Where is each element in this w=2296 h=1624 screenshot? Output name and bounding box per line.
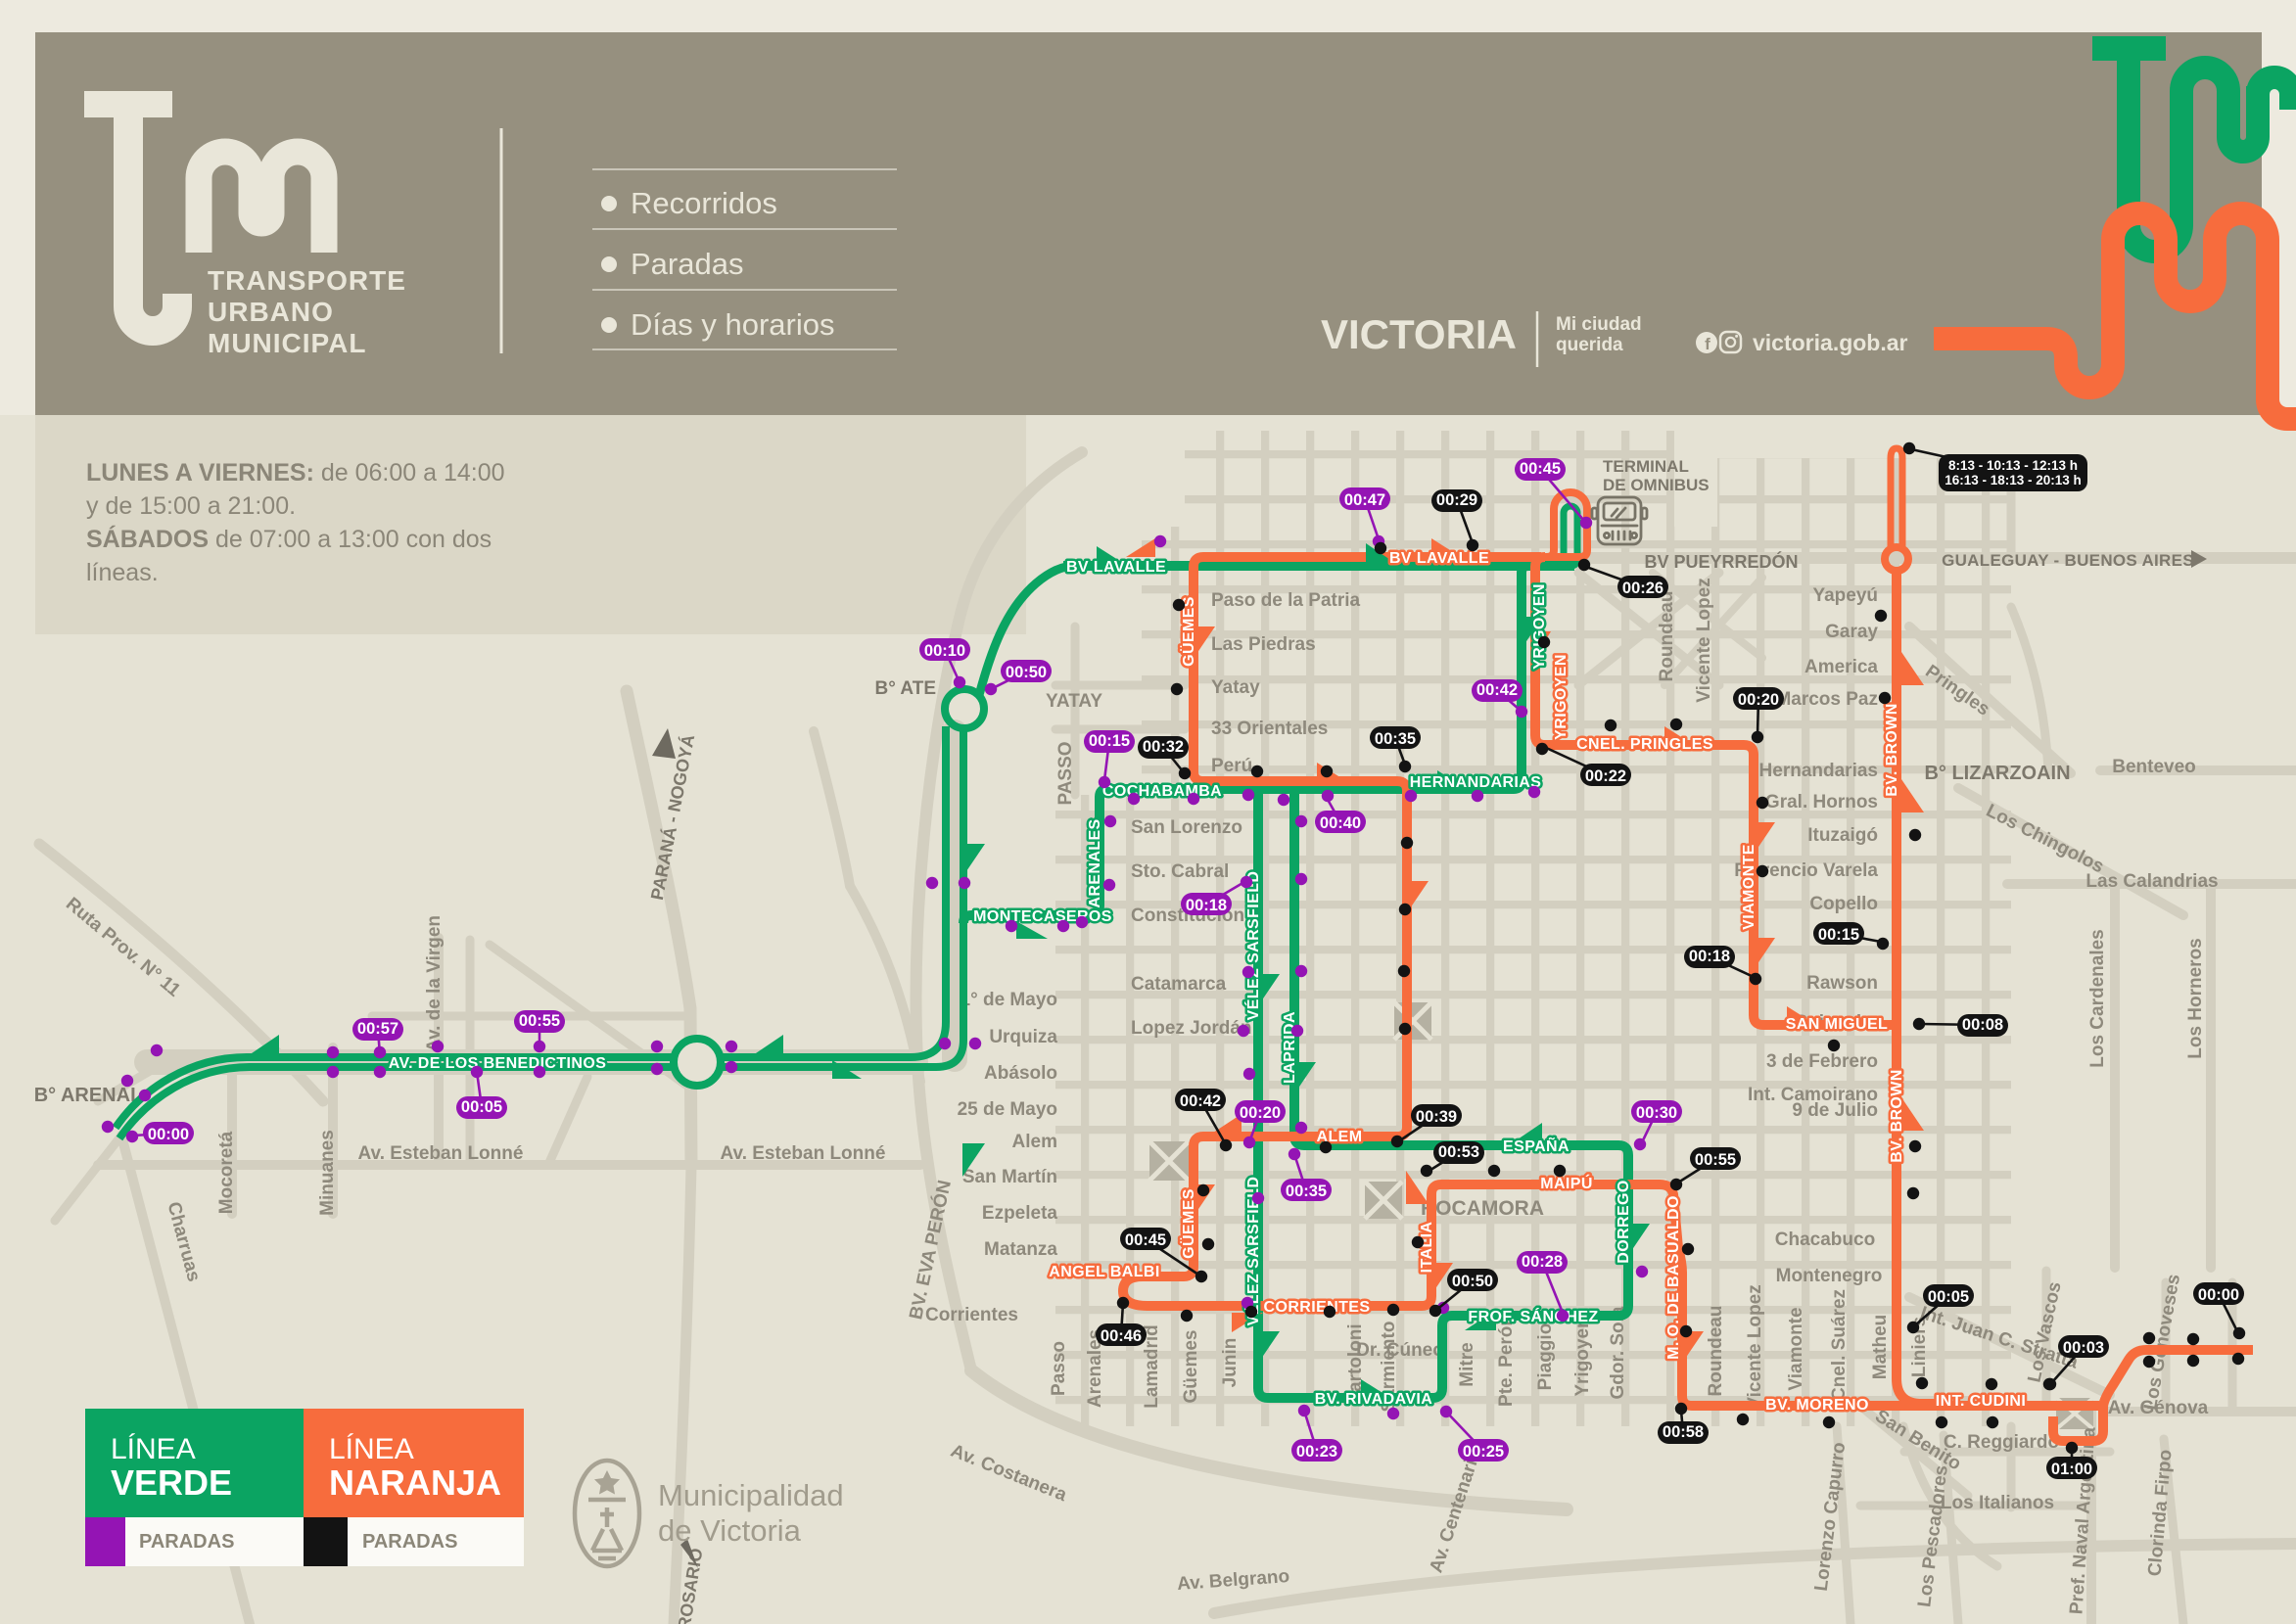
svg-text:YRIGOYEN: YRIGOYEN — [1553, 654, 1570, 740]
svg-text:San Lorenzo: San Lorenzo — [1131, 817, 1242, 838]
svg-text:00:20: 00:20 — [1240, 1104, 1281, 1122]
svg-text:00:55: 00:55 — [519, 1012, 560, 1030]
svg-text:Ituzaigó: Ituzaigó — [1807, 825, 1878, 846]
svg-text:Sto. Cabral: Sto. Cabral — [1131, 861, 1229, 882]
svg-text:PARADAS: PARADAS — [362, 1531, 457, 1553]
svg-text:00:42: 00:42 — [1476, 681, 1518, 699]
svg-text:YRIGOYEN: YRIGOYEN — [1531, 583, 1548, 670]
svg-text:LUNES A VIERNES: de 06:00 a 14: LUNES A VIERNES: de 06:00 a 14:00 — [86, 459, 505, 487]
svg-text:Ezpeleta: Ezpeleta — [982, 1203, 1058, 1224]
svg-text:FROF. SÁNCHEZ: FROF. SÁNCHEZ — [1468, 1307, 1598, 1325]
svg-text:BV LAVALLE: BV LAVALLE — [1389, 550, 1489, 567]
svg-text:Corrientes: Corrientes — [925, 1305, 1018, 1325]
svg-text:B° ARENAL: B° ARENAL — [34, 1085, 143, 1106]
svg-text:B° ATE: B° ATE — [875, 678, 936, 699]
svg-text:Marcos Paz: Marcos Paz — [1775, 689, 1878, 710]
svg-text:Copello: Copello — [1809, 894, 1878, 914]
svg-text:Piaggio: Piaggio — [1535, 1323, 1556, 1391]
svg-text:Las Calandrias: Las Calandrias — [2085, 871, 2218, 892]
svg-text:Hernandarias: Hernandarias — [1759, 761, 1878, 781]
svg-text:00:29: 00:29 — [1436, 491, 1477, 509]
svg-text:COCHABAMBA: COCHABAMBA — [1102, 783, 1222, 800]
svg-text:Mitre: Mitre — [1457, 1342, 1477, 1386]
svg-text:Chacabuco: Chacabuco — [1775, 1230, 1875, 1250]
svg-text:Vicente Lopez: Vicente Lopez — [1694, 578, 1714, 702]
svg-text:M. O. DE BASUALDO: M. O. DE BASUALDO — [1665, 1195, 1682, 1360]
svg-text:00:20: 00:20 — [1738, 691, 1779, 709]
svg-text:00:00: 00:00 — [2198, 1286, 2239, 1304]
svg-text:Vicente Lopez: Vicente Lopez — [1745, 1284, 1765, 1409]
svg-text:00:30: 00:30 — [1636, 1104, 1677, 1122]
svg-text:ANGEL BALBI: ANGEL BALBI — [1049, 1264, 1159, 1280]
svg-text:Rawson: Rawson — [1806, 973, 1878, 994]
svg-text:URBANO: URBANO — [208, 297, 334, 327]
svg-text:Paso de la Patria: Paso de la Patria — [1211, 590, 1361, 611]
svg-text:Alem: Alem — [1012, 1132, 1057, 1152]
svg-text:00:50: 00:50 — [1006, 664, 1047, 681]
svg-text:BV LAVALLE: BV LAVALLE — [1066, 559, 1166, 576]
svg-text:Av. Esteban Lonné: Av. Esteban Lonné — [721, 1143, 886, 1164]
svg-text:MUNICIPAL: MUNICIPAL — [208, 328, 366, 358]
svg-text:SAN MIGUEL: SAN MIGUEL — [1786, 1016, 1888, 1033]
svg-text:Urquiza: Urquiza — [989, 1027, 1057, 1047]
svg-text:Viamonte: Viamonte — [1786, 1307, 1806, 1390]
svg-text:MONTECASEROS: MONTECASEROS — [973, 908, 1112, 925]
svg-text:Perú: Perú — [1211, 756, 1252, 776]
svg-text:DORREGO: DORREGO — [1616, 1180, 1632, 1263]
svg-text:querida: querida — [1556, 335, 1623, 355]
svg-text:Lopez Jordán: Lopez Jordán — [1131, 1018, 1252, 1039]
svg-text:00:10: 00:10 — [924, 642, 965, 660]
svg-text:LÍNEA: LÍNEA — [111, 1433, 196, 1465]
svg-text:33 Orientales: 33 Orientales — [1211, 719, 1328, 739]
svg-text:y de 15:00 a 21:00.: y de 15:00 a 21:00. — [86, 492, 296, 520]
svg-text:Municipalidad: Municipalidad — [658, 1478, 844, 1512]
svg-text:Av. de la Virgen: Av. de la Virgen — [424, 915, 445, 1052]
svg-text:SÁBADOS de 07:00 a 13:00 con d: SÁBADOS de 07:00 a 13:00 con dos — [86, 525, 492, 553]
svg-text:victoria.gob.ar: victoria.gob.ar — [1753, 330, 1908, 355]
svg-text:8:13 - 10:13 - 12:13 h: 8:13 - 10:13 - 12:13 h — [1948, 458, 2078, 473]
svg-text:00:00: 00:00 — [148, 1126, 189, 1143]
svg-text:DE OMNIBUS: DE OMNIBUS — [1603, 476, 1710, 494]
svg-text:NARANJA: NARANJA — [329, 1462, 501, 1503]
svg-text:CORRIENTES: CORRIENTES — [1264, 1299, 1371, 1316]
svg-text:00:53: 00:53 — [1438, 1143, 1479, 1161]
svg-text:Los Cardenales: Los Cardenales — [2087, 929, 2108, 1068]
svg-text:MAIPÚ: MAIPÚ — [1540, 1174, 1593, 1192]
svg-text:00:05: 00:05 — [461, 1098, 502, 1116]
svg-text:YATAY: YATAY — [1046, 691, 1102, 712]
svg-text:00:45: 00:45 — [1520, 460, 1561, 478]
svg-text:LÍNEA: LÍNEA — [329, 1433, 414, 1465]
svg-text:00:18: 00:18 — [1689, 948, 1730, 965]
svg-text:CNEL. PRINGLES: CNEL. PRINGLES — [1576, 736, 1713, 753]
svg-text:San Martín: San Martín — [962, 1167, 1057, 1187]
svg-text:00:15: 00:15 — [1089, 732, 1130, 750]
svg-text:BV. BROWN: BV. BROWN — [1884, 703, 1900, 796]
svg-text:B° LIZARZOAIN: B° LIZARZOAIN — [1924, 763, 2070, 784]
svg-text:00:32: 00:32 — [1143, 738, 1184, 756]
svg-text:líneas.: líneas. — [86, 559, 159, 586]
svg-text:01:00: 01:00 — [2051, 1461, 2092, 1478]
svg-text:GÜEMES: GÜEMES — [1179, 1188, 1197, 1259]
svg-text:Dr. Cúneo: Dr. Cúneo — [1356, 1340, 1444, 1361]
svg-text:BV. MORENO: BV. MORENO — [1765, 1397, 1869, 1414]
svg-text:00:28: 00:28 — [1522, 1253, 1563, 1271]
svg-text:VÉLEZ SARSFIELD: VÉLEZ SARSFIELD — [1243, 871, 1262, 1021]
svg-text:00:26: 00:26 — [1622, 580, 1663, 597]
svg-text:Matanza: Matanza — [984, 1239, 1057, 1260]
svg-text:Paradas: Paradas — [631, 247, 743, 281]
svg-text:VIAMONTE: VIAMONTE — [1741, 844, 1757, 930]
svg-text:Mi ciudad: Mi ciudad — [1556, 314, 1642, 335]
svg-text:Días y horarios: Días y horarios — [631, 307, 834, 342]
svg-text:Recorridos: Recorridos — [631, 186, 777, 220]
svg-text:BV. RIVADAVIA: BV. RIVADAVIA — [1315, 1391, 1433, 1408]
svg-text:00:05: 00:05 — [1928, 1288, 1969, 1306]
svg-text:Roundeau: Roundeau — [1706, 1306, 1726, 1397]
svg-text:9 de Julio: 9 de Julio — [1792, 1100, 1878, 1121]
svg-text:00:42: 00:42 — [1180, 1092, 1221, 1110]
svg-text:C. Reggiardo: C. Reggiardo — [1944, 1432, 2059, 1453]
svg-text:Passo: Passo — [1049, 1341, 1069, 1396]
svg-text:00:25: 00:25 — [1463, 1443, 1504, 1461]
svg-text:00:35: 00:35 — [1286, 1183, 1327, 1200]
svg-text:00:47: 00:47 — [1344, 491, 1385, 509]
svg-text:3 de Febrero: 3 de Febrero — [1766, 1051, 1878, 1072]
svg-text:LAPRIDA: LAPRIDA — [1282, 1011, 1298, 1084]
svg-text:Mocoretá: Mocoretá — [216, 1131, 237, 1214]
svg-text:Minuanes: Minuanes — [317, 1130, 338, 1216]
svg-text:Montenegro: Montenegro — [1776, 1266, 1883, 1286]
svg-text:ESPAÑA: ESPAÑA — [1503, 1136, 1570, 1155]
svg-text:VERDE: VERDE — [111, 1462, 232, 1503]
svg-text:00:58: 00:58 — [1663, 1423, 1704, 1441]
svg-text:Yapeyú: Yapeyú — [1812, 585, 1878, 606]
svg-text:Los Horneros: Los Horneros — [2185, 938, 2206, 1059]
svg-text:00:46: 00:46 — [1101, 1327, 1142, 1345]
svg-text:America: America — [1804, 657, 1878, 677]
svg-text:Güemes: Güemes — [1181, 1330, 1201, 1404]
svg-text:00:45: 00:45 — [1125, 1231, 1166, 1249]
svg-text:INT. CUDINI: INT. CUDINI — [1936, 1393, 2026, 1410]
svg-text:Yrigoyen: Yrigoyen — [1572, 1317, 1593, 1396]
svg-text:Benteveo: Benteveo — [2112, 757, 2196, 777]
svg-text:Av. Esteban Lonné: Av. Esteban Lonné — [358, 1143, 524, 1164]
svg-text:Gral. Hornos: Gral. Hornos — [1765, 792, 1878, 812]
svg-text:de Victoria: de Victoria — [658, 1513, 802, 1548]
svg-text:00:40: 00:40 — [1320, 814, 1361, 832]
svg-text:AV. DE LOS BENEDICTINOS: AV. DE LOS BENEDICTINOS — [389, 1055, 607, 1072]
svg-text:00:39: 00:39 — [1416, 1108, 1457, 1126]
svg-text:Cnel. Suárez: Cnel. Suárez — [1829, 1289, 1850, 1401]
svg-text:GUALEGUAY - BUENOS AIRES: GUALEGUAY - BUENOS AIRES — [1942, 551, 2194, 570]
svg-text:00:15: 00:15 — [1818, 926, 1859, 944]
svg-text:Los Italianos: Los Italianos — [1941, 1493, 2054, 1513]
svg-text:00:57: 00:57 — [357, 1020, 398, 1038]
svg-text:00:22: 00:22 — [1585, 767, 1626, 785]
svg-text:16:13 - 18:13 - 20:13 h: 16:13 - 18:13 - 20:13 h — [1945, 473, 2082, 487]
svg-text:Garay: Garay — [1825, 622, 1878, 642]
svg-text:00:18: 00:18 — [1186, 897, 1227, 914]
svg-text:PASSO: PASSO — [1055, 741, 1076, 805]
svg-text:00:50: 00:50 — [1452, 1273, 1493, 1290]
svg-text:Catamarca: Catamarca — [1131, 974, 1227, 995]
svg-text:TRANSPORTE: TRANSPORTE — [208, 265, 406, 296]
svg-text:00:35: 00:35 — [1375, 730, 1416, 748]
svg-text:Yatay: Yatay — [1211, 677, 1260, 698]
svg-text:Roundeau: Roundeau — [1657, 591, 1677, 682]
svg-text:BV. BROWN: BV. BROWN — [1889, 1069, 1905, 1162]
svg-text:PARADAS: PARADAS — [139, 1531, 234, 1553]
svg-text:Las Piedras: Las Piedras — [1211, 634, 1316, 655]
svg-text:BV PUEYRREDÓN: BV PUEYRREDÓN — [1644, 551, 1798, 572]
svg-text:VICTORIA: VICTORIA — [1321, 311, 1517, 357]
svg-text:ROCAMORA: ROCAMORA — [1421, 1197, 1544, 1220]
svg-text:TERMINAL: TERMINAL — [1603, 457, 1689, 476]
svg-text:00:08: 00:08 — [1962, 1016, 2003, 1034]
svg-text:00:23: 00:23 — [1296, 1443, 1337, 1461]
svg-text:Abásolo: Abásolo — [984, 1063, 1057, 1084]
svg-text:00:55: 00:55 — [1695, 1151, 1736, 1169]
svg-text:f: f — [1705, 335, 1710, 353]
svg-text:00:03: 00:03 — [2063, 1339, 2104, 1357]
svg-text:ARENALES: ARENALES — [1087, 818, 1103, 907]
svg-text:Matheu: Matheu — [1870, 1315, 1891, 1380]
svg-text:25 de Mayo: 25 de Mayo — [958, 1099, 1057, 1120]
svg-text:HERNANDARIAS: HERNANDARIAS — [1410, 774, 1542, 791]
svg-text:Pte. Perón: Pte. Perón — [1496, 1315, 1517, 1407]
svg-text:Junin: Junin — [1220, 1338, 1241, 1388]
svg-text:1° de Mayo: 1° de Mayo — [961, 990, 1057, 1010]
